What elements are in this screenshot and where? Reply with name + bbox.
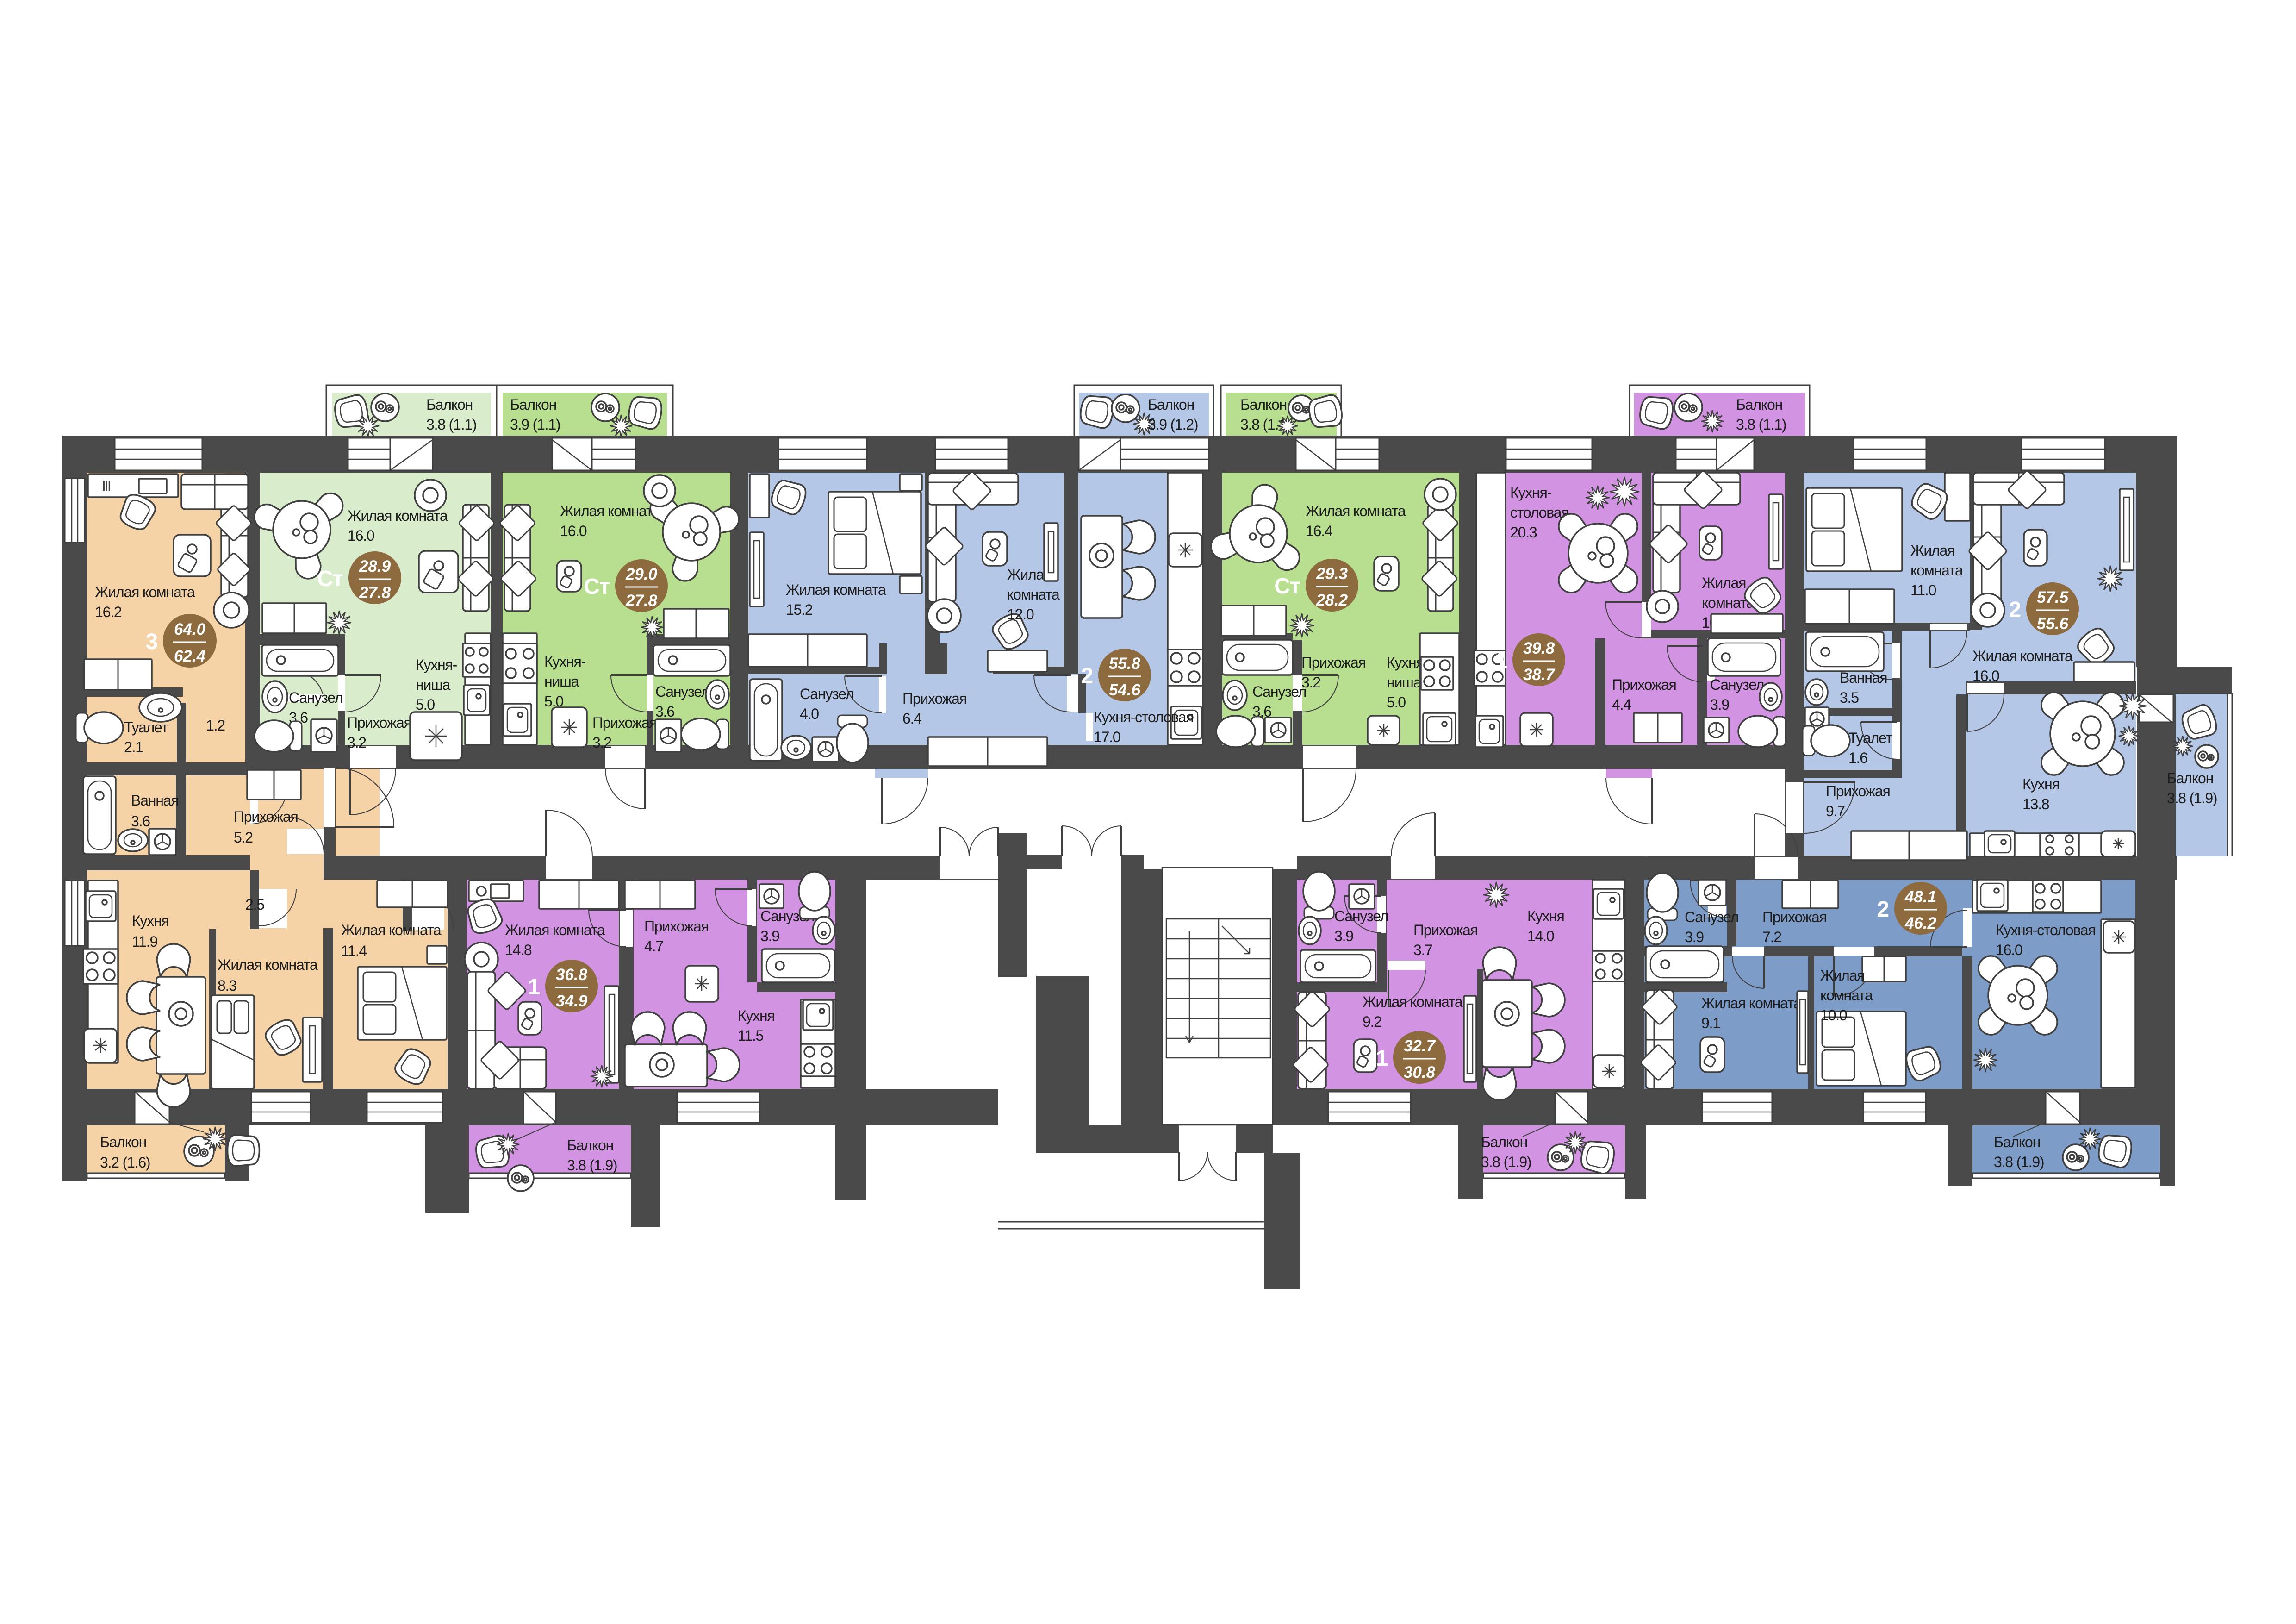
svg-text:Жилая комната: Жилая комната: [95, 584, 195, 600]
svg-text:комната: комната: [1007, 586, 1060, 603]
svg-text:2: 2: [1877, 897, 1889, 922]
svg-text:Жилая комната: Жилая комната: [505, 922, 605, 938]
svg-text:16.0: 16.0: [348, 527, 374, 544]
svg-text:39.8: 39.8: [1523, 639, 1555, 657]
svg-text:2: 2: [1081, 664, 1093, 688]
svg-text:Ст: Ст: [1274, 574, 1300, 599]
svg-text:Жилая комната: Жилая комната: [786, 581, 886, 598]
svg-text:Ванная: Ванная: [1840, 669, 1887, 686]
svg-text:11.0: 11.0: [1910, 582, 1936, 599]
svg-text:Кухня-столовая: Кухня-столовая: [1996, 922, 2095, 938]
svg-text:Ст: Ст: [584, 575, 610, 599]
svg-text:Жилая комната: Жилая комната: [560, 503, 660, 519]
svg-text:20.3: 20.3: [1510, 524, 1537, 541]
svg-text:1: 1: [1376, 1046, 1388, 1071]
svg-text:комната: комната: [1820, 987, 1873, 1004]
svg-text:32.7: 32.7: [1404, 1037, 1436, 1055]
svg-text:3.8 (1.9): 3.8 (1.9): [1481, 1154, 1531, 1170]
svg-text:3.2: 3.2: [592, 734, 611, 751]
svg-text:Санузел: Санузел: [1685, 909, 1738, 925]
svg-text:Туалет: Туалет: [1848, 730, 1893, 746]
svg-text:3.9: 3.9: [1710, 696, 1729, 713]
svg-text:Балкон: Балкон: [426, 396, 473, 413]
svg-text:5.0: 5.0: [416, 696, 435, 713]
svg-text:3.9: 3.9: [760, 928, 779, 944]
svg-text:55.8: 55.8: [1109, 655, 1141, 673]
svg-text:11.4: 11.4: [341, 943, 367, 959]
svg-text:5.2: 5.2: [234, 829, 253, 846]
svg-text:8.3: 8.3: [218, 977, 236, 994]
svg-text:29.3: 29.3: [1316, 565, 1348, 583]
svg-text:3.5: 3.5: [1840, 689, 1859, 706]
svg-text:Кухня: Кухня: [132, 912, 169, 929]
svg-text:1.2: 1.2: [206, 717, 225, 734]
svg-text:16.0: 16.0: [1996, 942, 2022, 958]
svg-text:Ст: Ст: [317, 567, 343, 591]
svg-text:Жилая комната: Жилая комната: [218, 956, 318, 973]
svg-text:3.2: 3.2: [1301, 674, 1320, 691]
svg-text:5.0: 5.0: [544, 693, 563, 710]
svg-text:11.5: 11.5: [738, 1027, 764, 1044]
svg-text:27.8: 27.8: [359, 584, 391, 602]
svg-text:3.9: 3.9: [1685, 929, 1704, 945]
svg-text:34.9: 34.9: [556, 992, 588, 1010]
svg-text:15.2: 15.2: [786, 601, 813, 618]
svg-text:30.8: 30.8: [1404, 1063, 1436, 1081]
svg-text:Жилая комната: Жилая комната: [1363, 993, 1463, 1010]
svg-text:55.6: 55.6: [2037, 615, 2069, 633]
svg-text:13.8: 13.8: [2022, 796, 2049, 812]
svg-text:Кухня: Кухня: [2022, 776, 2060, 793]
svg-text:Балкон: Балкон: [567, 1137, 613, 1154]
svg-text:3.6: 3.6: [655, 703, 674, 720]
svg-text:64.0: 64.0: [174, 620, 206, 638]
svg-text:3.8 (1.1): 3.8 (1.1): [426, 416, 476, 433]
svg-text:ниша: ниша: [1387, 674, 1422, 691]
svg-text:Санузел: Санузел: [1334, 908, 1388, 924]
svg-text:3.8 (1.9): 3.8 (1.9): [2167, 790, 2217, 806]
svg-text:17.0: 17.0: [1094, 729, 1120, 745]
svg-text:Ванная: Ванная: [131, 792, 178, 809]
svg-text:3.8 (1.9): 3.8 (1.9): [1994, 1154, 2044, 1170]
svg-text:Прихожая: Прихожая: [1762, 909, 1827, 925]
svg-text:2.5: 2.5: [245, 896, 264, 913]
svg-text:Санузел: Санузел: [800, 686, 853, 702]
svg-text:Балкон: Балкон: [2167, 770, 2213, 787]
svg-text:Прихожая: Прихожая: [644, 918, 709, 935]
svg-text:3.7: 3.7: [1413, 942, 1432, 958]
svg-text:16.0: 16.0: [1972, 668, 1999, 684]
svg-text:Кухня-: Кухня-: [416, 656, 457, 673]
svg-text:Балкон: Балкон: [100, 1134, 146, 1150]
svg-text:10.0: 10.0: [1820, 1007, 1847, 1024]
svg-text:3.6: 3.6: [131, 813, 150, 830]
svg-text:Жилая: Жилая: [1820, 967, 1864, 984]
svg-text:Прихожая: Прихожая: [592, 714, 657, 731]
svg-text:Балкон: Балкон: [1994, 1134, 2040, 1150]
svg-text:48.1: 48.1: [1904, 888, 1936, 906]
svg-text:3.8 (1.1): 3.8 (1.1): [1736, 416, 1786, 433]
svg-text:Прихожая: Прихожая: [1612, 676, 1676, 693]
svg-text:Прихожая: Прихожая: [902, 690, 967, 707]
svg-text:28.9: 28.9: [359, 557, 391, 575]
svg-text:14.0: 14.0: [1527, 928, 1554, 944]
svg-text:Прихожая: Прихожая: [1413, 922, 1478, 938]
svg-text:Балкон: Балкон: [1240, 396, 1287, 413]
svg-text:62.4: 62.4: [174, 647, 205, 665]
svg-text:9.7: 9.7: [1826, 803, 1845, 819]
svg-text:Жилая комната: Жилая комната: [341, 922, 442, 938]
svg-text:Жилая комната: Жилая комната: [1701, 995, 1802, 1012]
svg-text:Балкон: Балкон: [1148, 396, 1194, 413]
svg-text:Санузел: Санузел: [1710, 676, 1764, 693]
svg-text:29.0: 29.0: [625, 565, 658, 583]
svg-text:4.4: 4.4: [1612, 696, 1631, 713]
svg-text:Санузел: Санузел: [1252, 683, 1306, 700]
svg-text:11.9: 11.9: [132, 933, 158, 950]
svg-text:Прихожая: Прихожая: [234, 808, 298, 825]
svg-text:Балкон: Балкон: [1481, 1134, 1527, 1150]
svg-text:Кухня-: Кухня-: [544, 653, 586, 670]
svg-text:Прихожая: Прихожая: [1826, 783, 1890, 800]
svg-text:1: 1: [1495, 649, 1507, 673]
svg-text:3.9 (1.1): 3.9 (1.1): [510, 416, 560, 433]
svg-text:2: 2: [2009, 598, 2021, 622]
svg-text:2.1: 2.1: [124, 739, 143, 756]
svg-text:3.9 (1.2): 3.9 (1.2): [1148, 416, 1198, 433]
svg-text:3.2 (1.6): 3.2 (1.6): [100, 1154, 150, 1171]
svg-text:1.6: 1.6: [1848, 750, 1867, 766]
svg-text:ниша: ниша: [544, 673, 579, 690]
svg-text:3.8 (1.9): 3.8 (1.9): [567, 1157, 617, 1174]
svg-text:Прихожая: Прихожая: [1301, 654, 1366, 671]
svg-text:27.8: 27.8: [625, 592, 658, 610]
svg-text:9.2: 9.2: [1363, 1013, 1381, 1030]
svg-text:12.0: 12.0: [1007, 606, 1034, 623]
svg-text:4.0: 4.0: [800, 706, 819, 722]
svg-text:6.4: 6.4: [902, 710, 921, 727]
svg-text:Кухня-столовая: Кухня-столовая: [1094, 709, 1193, 725]
svg-text:Балкон: Балкон: [510, 396, 556, 413]
svg-text:Жилая комната: Жилая комната: [1306, 503, 1406, 519]
svg-text:Жилая: Жилая: [1702, 575, 1746, 591]
svg-text:Балкон: Балкон: [1736, 396, 1782, 413]
svg-text:Санузел: Санузел: [289, 689, 342, 706]
svg-text:столовая: столовая: [1510, 504, 1568, 521]
svg-text:9.1: 9.1: [1701, 1015, 1720, 1031]
svg-text:ниша: ниша: [416, 676, 451, 693]
svg-text:1: 1: [528, 975, 540, 999]
svg-text:Прихожая: Прихожая: [347, 714, 411, 731]
svg-text:28.2: 28.2: [1316, 591, 1348, 609]
svg-text:Ⅲ: Ⅲ: [102, 479, 112, 494]
svg-text:14.8: 14.8: [505, 942, 532, 958]
svg-text:4.7: 4.7: [644, 938, 663, 955]
svg-text:3.9: 3.9: [1334, 928, 1353, 944]
svg-text:Кухня-: Кухня-: [1510, 484, 1552, 501]
svg-text:3: 3: [146, 630, 158, 654]
svg-text:Кухня: Кухня: [738, 1007, 775, 1024]
svg-text:7.2: 7.2: [1762, 929, 1781, 945]
svg-text:57.5: 57.5: [2037, 588, 2069, 606]
svg-text:Жилая комната: Жилая комната: [1972, 648, 2073, 664]
svg-text:16.4: 16.4: [1306, 523, 1332, 539]
svg-text:комната: комната: [1910, 562, 1963, 579]
svg-text:Кухня: Кухня: [1527, 908, 1564, 924]
svg-text:3.2: 3.2: [347, 734, 366, 751]
svg-text:5.0: 5.0: [1387, 694, 1406, 711]
svg-text:54.6: 54.6: [1109, 681, 1141, 699]
svg-text:Санузел: Санузел: [655, 683, 709, 700]
svg-text:16.0: 16.0: [560, 523, 587, 539]
svg-text:38.7: 38.7: [1523, 666, 1556, 684]
svg-text:Жилая: Жилая: [1910, 542, 1954, 559]
svg-text:16.2: 16.2: [95, 604, 122, 620]
svg-text:46.2: 46.2: [1904, 914, 1937, 932]
svg-text:36.8: 36.8: [556, 966, 588, 984]
